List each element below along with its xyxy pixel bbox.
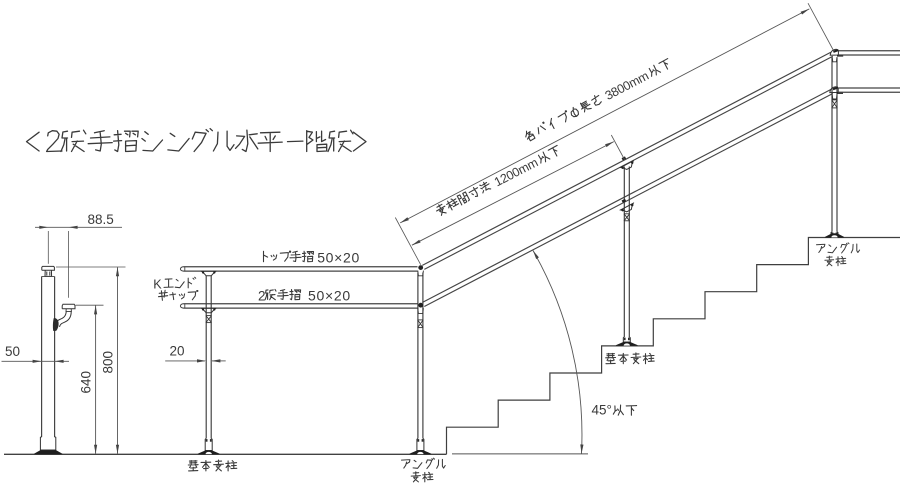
svg-text:20: 20	[170, 344, 185, 359]
svg-text:640: 640	[79, 371, 94, 394]
svg-text:45°: 45°	[592, 403, 612, 418]
svg-text:2: 2	[258, 289, 266, 304]
svg-text:K: K	[153, 277, 162, 291]
svg-text:50: 50	[5, 344, 20, 359]
svg-text:88.5: 88.5	[88, 212, 114, 227]
svg-text:800: 800	[101, 351, 116, 374]
svg-text:50×20: 50×20	[317, 249, 360, 265]
svg-text:50×20: 50×20	[308, 288, 351, 304]
